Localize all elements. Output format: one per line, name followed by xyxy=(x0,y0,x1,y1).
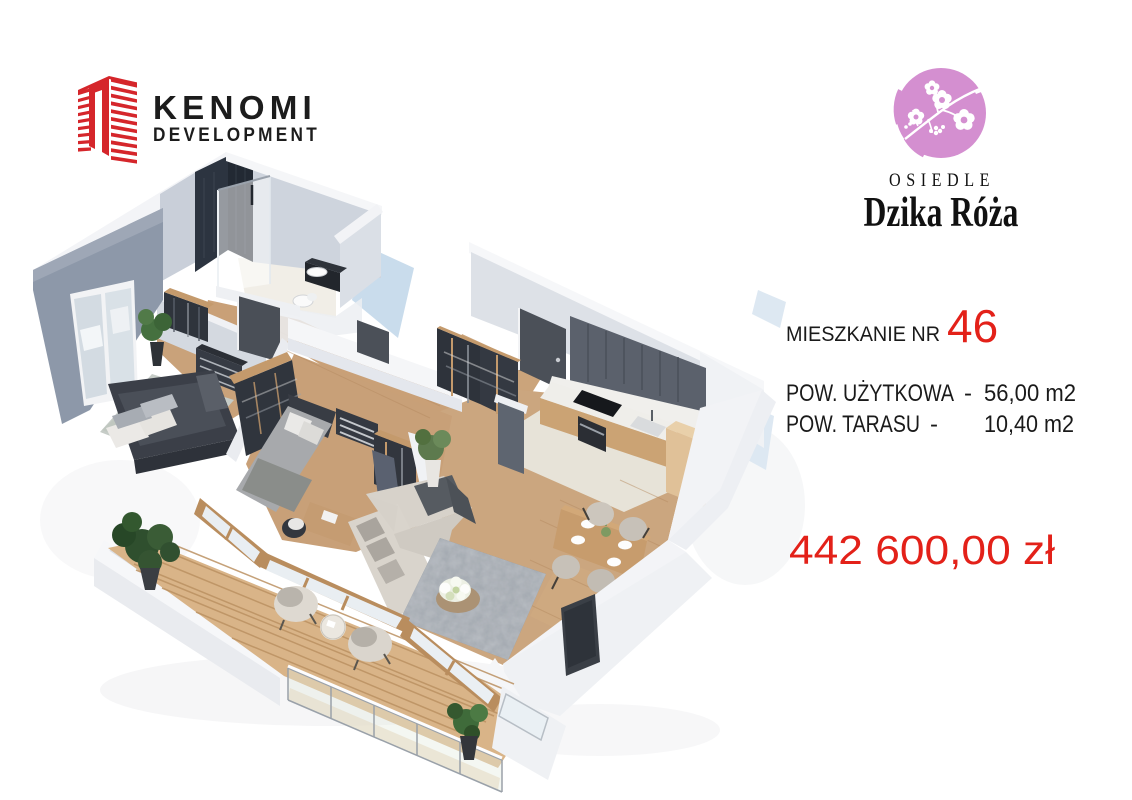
svg-text:MIESZKANIE NR: MIESZKANIE NR xyxy=(786,323,940,346)
svg-text:442 600,00 zł: 442 600,00 zł xyxy=(789,527,1055,573)
svg-text:POW. UŻYTKOWA: POW. UŻYTKOWA xyxy=(786,380,954,407)
svg-text:KENOMI: KENOMI xyxy=(153,89,317,126)
svg-text:-: - xyxy=(930,411,938,438)
svg-text:OSIEDLE: OSIEDLE xyxy=(889,170,995,191)
svg-text:POW. TARASU: POW. TARASU xyxy=(786,411,920,438)
svg-text:46: 46 xyxy=(947,300,998,352)
svg-text:-: - xyxy=(964,380,972,407)
svg-text:Dzika Róża: Dzika Róża xyxy=(864,190,1019,236)
svg-text:56,00 m2: 56,00 m2 xyxy=(984,380,1076,407)
svg-text:10,40 m2: 10,40 m2 xyxy=(984,411,1074,438)
svg-text:DEVELOPMENT: DEVELOPMENT xyxy=(153,125,320,146)
